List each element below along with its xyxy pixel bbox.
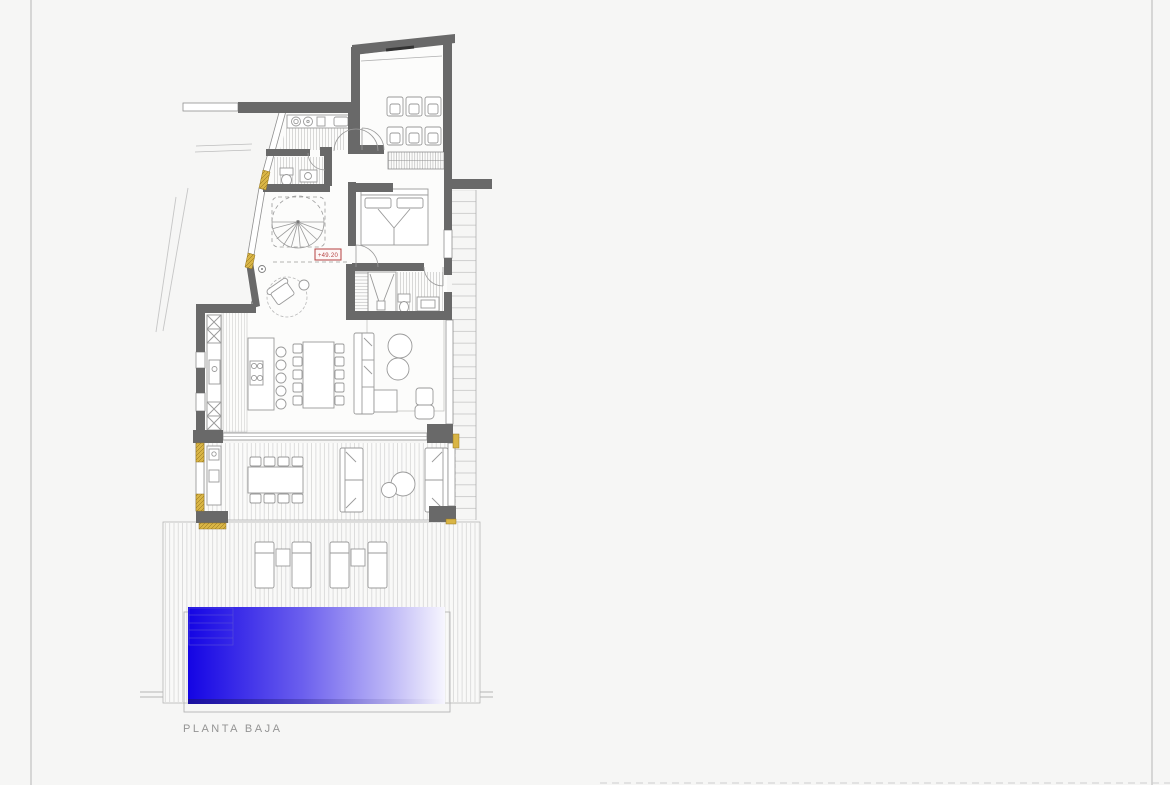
pillow (365, 198, 391, 208)
dining-chair (335, 370, 344, 379)
outdoor-sink (209, 449, 219, 460)
armchair-seat (416, 388, 433, 405)
guest-bathroom (272, 157, 324, 186)
wall (444, 258, 452, 275)
outdoor-chair (278, 494, 289, 503)
wall (443, 40, 452, 152)
laundry-sink (334, 117, 348, 126)
level-marker-text: +49.20 (318, 253, 339, 259)
terrace-side-glazing (448, 443, 455, 506)
dining-area (293, 342, 344, 408)
wall (346, 264, 355, 318)
dining-table (303, 342, 334, 408)
wall (356, 183, 393, 192)
dining-chair (335, 383, 344, 392)
outdoor-dining-table (248, 467, 303, 493)
wall (324, 153, 332, 186)
dining-chair (335, 357, 344, 366)
sink-bowl (212, 367, 217, 372)
appliance (317, 117, 325, 126)
dining-chair (335, 344, 344, 353)
outdoor-chair (292, 494, 303, 503)
living-window (446, 320, 453, 424)
wall (444, 292, 452, 320)
outdoor-round-table (382, 483, 397, 498)
wall (196, 304, 256, 313)
pillow (397, 198, 423, 208)
armchair-base (415, 405, 434, 419)
wall (346, 311, 448, 320)
sink (305, 173, 312, 180)
toilet-tank (398, 294, 410, 302)
bar-stool (276, 373, 286, 383)
bar-stool (276, 360, 286, 370)
window-frame-marker (446, 519, 456, 524)
sun-lounger (255, 542, 274, 588)
coffee-table (387, 358, 409, 380)
wall-sink-unit (209, 360, 220, 384)
coffee-table (388, 334, 412, 358)
utility-room (280, 115, 352, 150)
wall (196, 511, 228, 523)
sun-lounger (368, 542, 387, 588)
bar-stool (276, 399, 286, 409)
outdoor-chair (250, 457, 261, 466)
wall (348, 108, 357, 154)
outdoor-chair (278, 457, 289, 466)
side-table (351, 549, 365, 566)
bar-stool (276, 386, 286, 396)
dining-chair (293, 370, 302, 379)
wall (196, 368, 205, 393)
wall (266, 149, 310, 156)
bedroom-window (444, 230, 452, 258)
wall (238, 102, 352, 113)
pool-deep-edge (188, 699, 445, 704)
toilet-tank (280, 168, 293, 175)
steps-band (452, 190, 476, 520)
swimming-pool (184, 607, 450, 712)
retaining-wall-lines (195, 144, 252, 152)
dining-chair (293, 383, 302, 392)
wall (427, 424, 453, 443)
outdoor-chair (292, 457, 303, 466)
sun-lounger (292, 542, 311, 588)
sink (421, 300, 435, 308)
side-table (299, 280, 309, 290)
window-frame-marker (453, 434, 459, 448)
wall (263, 184, 330, 192)
bar-stool (276, 347, 286, 357)
site-wall (183, 103, 238, 111)
dining-chair (293, 357, 302, 366)
outdoor-chair (264, 457, 275, 466)
wall (348, 182, 356, 246)
wall (196, 411, 205, 437)
dining-chair (293, 396, 302, 405)
outdoor-grill (209, 470, 219, 482)
outdoor-chair (264, 494, 275, 503)
floor-plan-drawing: +49.20 PLANTA BAJA (0, 0, 1170, 785)
outdoor-chair (250, 494, 261, 503)
kitchen-counter-run (222, 312, 247, 432)
dining-chair (293, 344, 302, 353)
plan-title: PLANTA BAJA (183, 723, 282, 735)
wall (444, 152, 452, 230)
floor-plan-sheet: +49.20 PLANTA BAJA (0, 0, 1170, 785)
wall-stub (452, 179, 492, 189)
dining-chair (335, 396, 344, 405)
covered-terrace (197, 443, 456, 520)
kitchen-window (196, 352, 205, 368)
level-marker: +49.20 (315, 249, 341, 260)
bedroom (361, 189, 428, 245)
kitchen-window (196, 393, 205, 411)
side-table (276, 549, 290, 566)
toilet-bowl (282, 175, 292, 186)
shower-drain (377, 301, 385, 310)
toilet-bowl (400, 302, 409, 313)
boundary-lines-left (140, 692, 163, 697)
pool-water (188, 607, 445, 704)
sun-lounger (330, 542, 349, 588)
wall (352, 263, 424, 271)
stair-center-pole (296, 220, 299, 223)
sofa-chaise (374, 390, 397, 412)
exterior-steps (452, 190, 476, 520)
